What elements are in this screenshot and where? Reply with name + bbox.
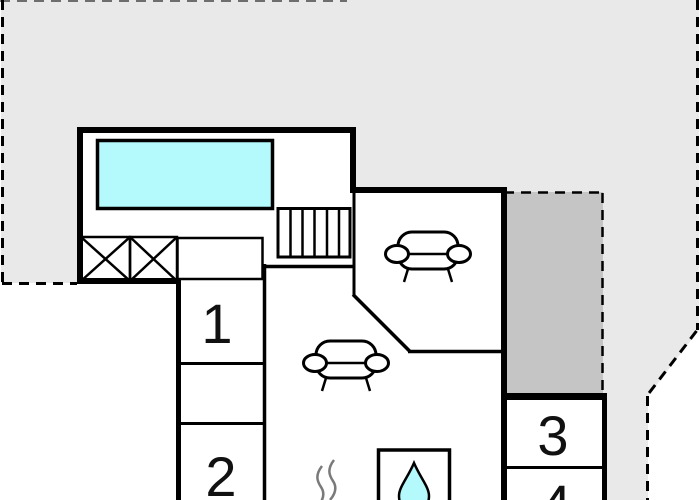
sofa-icon [304, 341, 389, 391]
wardrobe-icons [81, 237, 263, 281]
smoke-icon [317, 460, 335, 500]
room-1-label: 1 [201, 292, 232, 355]
swimming-pool [98, 141, 273, 209]
fireplace-icon [317, 450, 449, 500]
room-3-label: 3 [537, 404, 568, 467]
terrace-fill [504, 192, 603, 393]
wardrobe-x-icon [81, 237, 130, 281]
wardrobe-x-icon [130, 237, 177, 281]
room-2-label: 2 [205, 445, 236, 500]
staircase-icon [278, 209, 350, 258]
sofa-icon [386, 232, 471, 282]
closet-unit [178, 238, 263, 279]
floor-plan: 1 2 3 4 [0, 0, 700, 500]
terrace [504, 192, 603, 393]
room-4-label: 4 [540, 473, 571, 500]
